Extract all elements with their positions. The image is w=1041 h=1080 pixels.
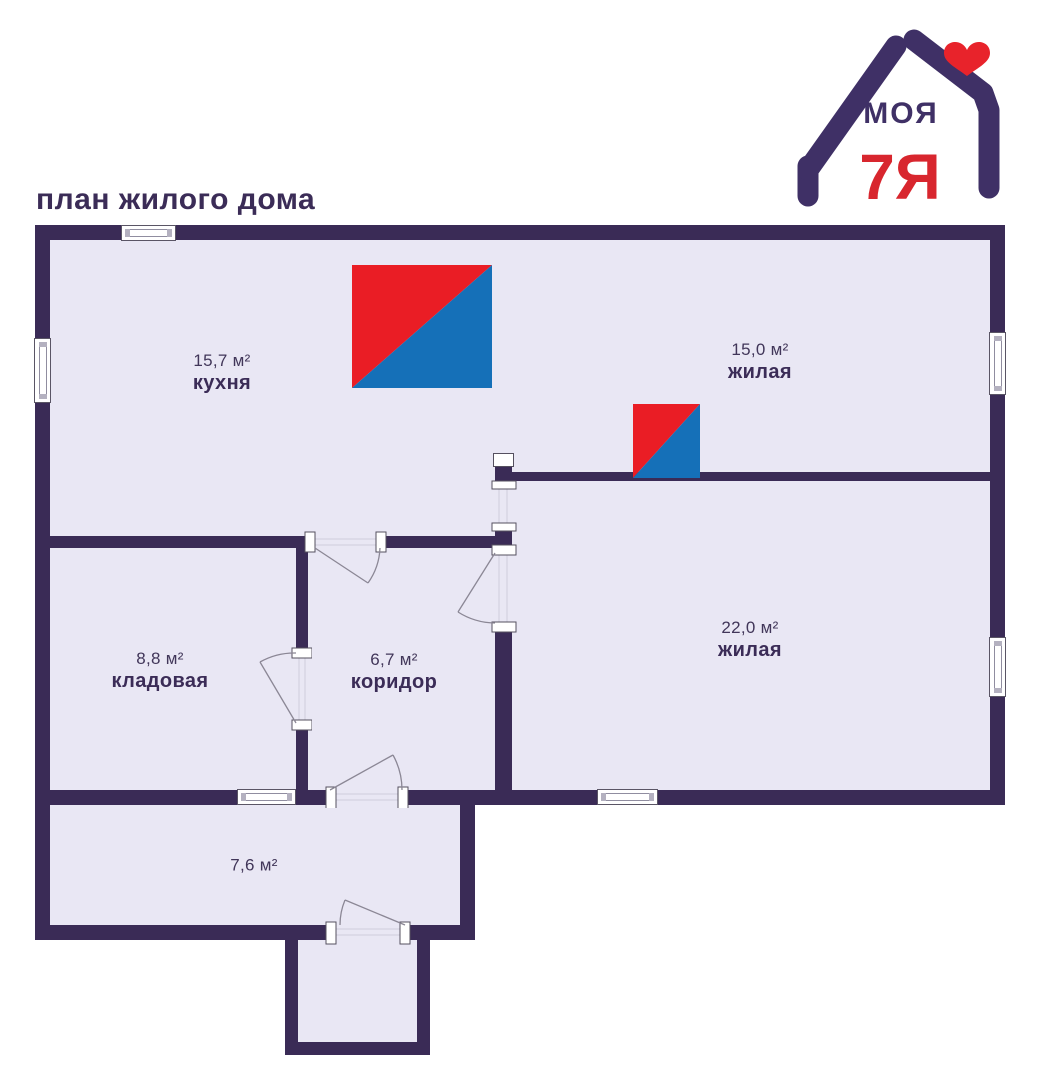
wall-segment: [990, 225, 1005, 805]
door-swing: [450, 542, 520, 637]
door-swing: [318, 880, 422, 955]
window: [34, 338, 51, 403]
page-title: план жилого дома: [36, 183, 315, 217]
window-pane: [39, 342, 47, 399]
wall-segment: [50, 536, 495, 548]
floor-porch: [298, 940, 417, 1042]
room-label-corridor: 6,7 м² коридор: [351, 650, 437, 694]
wall-segment: [35, 805, 50, 940]
room-label-veranda: 7,6 м²: [230, 856, 278, 877]
floor-plan-page: план жилого дома МОЯ 7Я: [0, 0, 1041, 1080]
room-name: жилая: [728, 361, 792, 384]
wall-segment: [285, 1042, 430, 1055]
window-pane: [125, 229, 172, 237]
wall-segment: [35, 790, 1005, 805]
stove-icon: [352, 265, 492, 388]
wall-end-cap: [493, 453, 514, 467]
room-name: кладовая: [111, 670, 208, 693]
window: [597, 789, 658, 805]
open-passage: [488, 478, 518, 538]
agency-logo: МОЯ 7Я: [792, 20, 1008, 220]
wall-segment: [512, 472, 990, 481]
wall-segment: [417, 940, 430, 1055]
room-area: 22,0 м²: [718, 618, 782, 638]
logo-text-7ya: 7Я: [859, 141, 941, 213]
wall-segment: [285, 940, 298, 1055]
window: [121, 225, 176, 241]
stove-icon: [633, 404, 700, 478]
door-swing: [318, 730, 422, 808]
room-area: 15,7 м²: [193, 351, 251, 371]
floor-main: [50, 240, 990, 790]
room-label-living-top: 15,0 м² жилая: [728, 340, 792, 384]
window-pane: [994, 641, 1002, 693]
wall-segment: [460, 805, 475, 925]
room-name: жилая: [718, 639, 782, 662]
room-name: кухня: [193, 372, 251, 395]
room-area: 15,0 м²: [728, 340, 792, 360]
window-pane: [241, 793, 292, 801]
window: [237, 789, 296, 805]
room-area: 8,8 м²: [111, 649, 208, 669]
wall-segment: [35, 225, 1005, 240]
room-area: 7,6 м²: [230, 856, 278, 876]
room-label-living-right: 22,0 м² жилая: [718, 618, 782, 662]
logo-text-moya: МОЯ: [863, 97, 939, 130]
window-pane: [601, 793, 654, 801]
wall-segment: [35, 225, 50, 805]
room-label-kitchen: 15,7 м² кухня: [193, 351, 251, 395]
window-pane: [994, 336, 1002, 391]
door-swing: [300, 530, 400, 596]
room-area: 6,7 м²: [351, 650, 437, 670]
door-swing: [248, 640, 312, 736]
room-name: коридор: [351, 671, 437, 694]
window: [989, 637, 1006, 697]
room-label-storage: 8,8 м² кладовая: [111, 649, 208, 693]
window: [989, 332, 1006, 395]
